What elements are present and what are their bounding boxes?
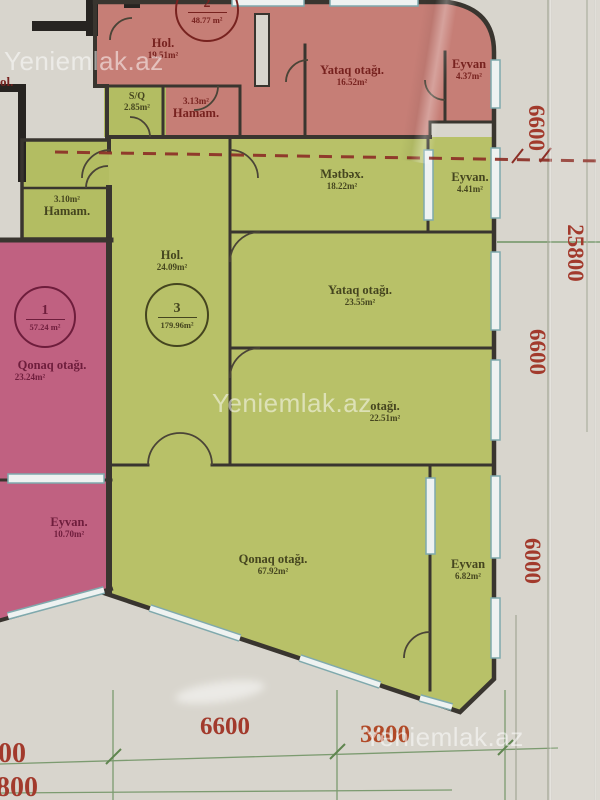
room-label-eyvan3-top: Eyvan. 4.41m² (451, 170, 488, 194)
room-label-sq: S/Q 2.85m² (124, 91, 150, 112)
apartment2-number: 2 (188, 0, 227, 13)
dimension-right-6600b: 6600 (524, 329, 550, 375)
room-label-qonaq1: Qonaq otağı. 23.24m² (18, 358, 87, 382)
apartment3-badge: 3 179.96m² (145, 283, 209, 347)
dimension-left-cut-800: 800 (0, 772, 38, 800)
watermark-top: Yeniemlak.az (4, 46, 164, 77)
paper-margin (549, 0, 600, 800)
room-label-eyvan2: Eyvan 4.37m² (452, 57, 486, 81)
apartment1-number: 1 (26, 302, 65, 321)
paper-crease (549, 0, 552, 800)
dimension-right-25800: 25800 (562, 224, 588, 282)
floorplan-photo: 1 57.24 m² 2 48.77 m² 3 179.96m² Hol. 19… (0, 0, 600, 800)
room-label-eyvan3-bottom: Eyvan 6.82m² (451, 557, 485, 581)
dimension-right-6000: 6000 (519, 538, 545, 584)
room-label-otaq3: otağı. 22.51m² (370, 399, 400, 423)
apartment3-wing-fill (22, 140, 109, 239)
apartment1-badge: 1 57.24 m² (14, 286, 76, 348)
room-label-hamam2: 3.13m² Hamam. (173, 96, 219, 120)
apartment2-area: 48.77 m² (192, 13, 223, 25)
room-label-hamam3: 3.10m² Hamam. (44, 194, 90, 218)
room-label-qonaq3: Qonaq otağı. 67.92m² (239, 552, 308, 576)
dimension-right-6600a: 6600 (523, 105, 549, 151)
watermark-bottom: Yeniemlak.az (364, 722, 524, 753)
room-label-metbex: Mətbəx. 18.22m² (320, 167, 363, 191)
apartment1-area: 57.24 m² (30, 320, 61, 332)
watermark-middle: Yeniemlak.az (212, 388, 372, 419)
dimension-bottom-6600: 6600 (200, 713, 250, 741)
dimension-left-cut-00: 00 (0, 738, 26, 770)
apartment3-green-fill (101, 137, 496, 712)
apartment3-area: 179.96m² (160, 318, 193, 330)
apartment3-number: 3 (158, 300, 197, 319)
room-label-yataq3: Yataq otağı. 23.55m² (328, 283, 392, 307)
room-label-hol3: Hol. 24.09m² (157, 248, 187, 272)
paper-crease (594, 0, 597, 800)
room-label-eyvan1: Eyvan. 10.70m² (50, 515, 87, 539)
room-label-yataq2: Yataq otağı. 16.52m² (320, 63, 384, 87)
